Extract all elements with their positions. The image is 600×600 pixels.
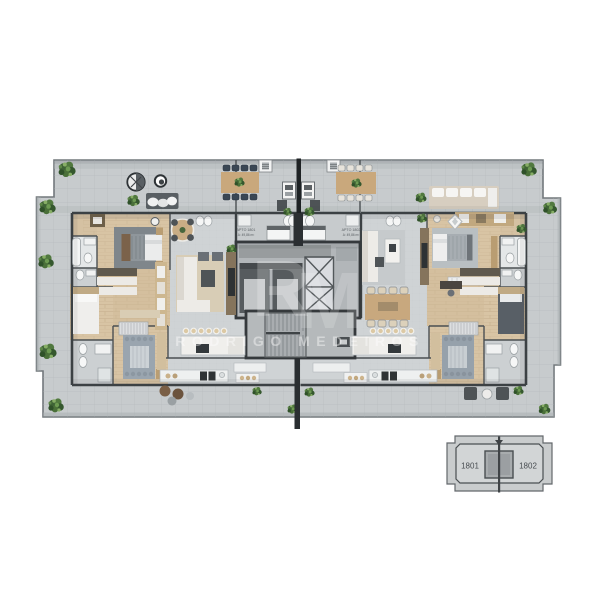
svg-text:1802: 1802: [519, 462, 537, 471]
svg-text:RODRIGO MEDEIROS: RODRIGO MEDEIROS: [175, 333, 424, 349]
svg-text:A: 49,86 m²: A: 49,86 m²: [343, 233, 359, 237]
svg-text:A: 49,86 m²: A: 49,86 m²: [238, 233, 254, 237]
svg-text:M: M: [296, 256, 363, 345]
svg-text:1801: 1801: [461, 462, 479, 471]
svg-text:APTO 1802: APTO 1802: [342, 228, 361, 232]
svg-text:APTO 1801: APTO 1801: [237, 228, 256, 232]
